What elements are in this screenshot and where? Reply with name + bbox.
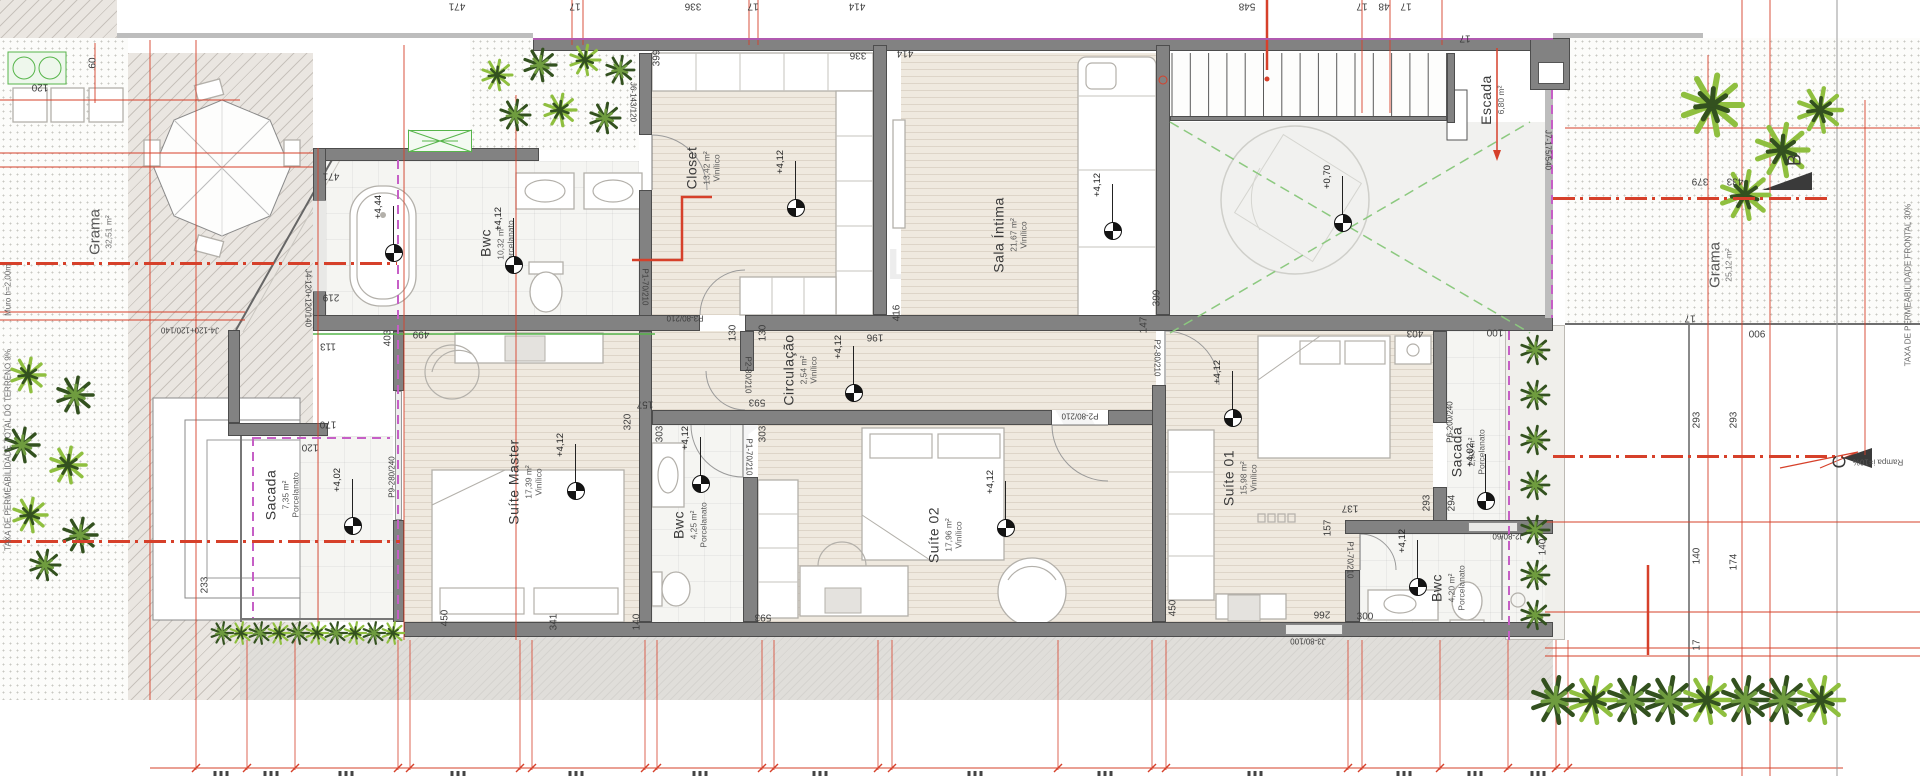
room-material: Vinílico bbox=[809, 334, 820, 405]
note-rampa: Rampa i=10% bbox=[1853, 458, 1903, 467]
dim-label: 593 bbox=[749, 397, 766, 408]
level-target-icon bbox=[505, 256, 523, 274]
room-material: Porcelanato bbox=[699, 502, 710, 547]
dim-label: 414 bbox=[849, 1, 866, 12]
red-dashdot-line bbox=[1553, 455, 1843, 458]
level-value: +4,12 bbox=[1092, 173, 1103, 197]
room-label-suite-01: Suíte 0115,98 m²Vinílico bbox=[1221, 450, 1260, 506]
dim-label: 219 bbox=[323, 292, 340, 303]
level-target-icon bbox=[692, 475, 710, 493]
level-target-icon bbox=[385, 244, 403, 262]
red-dashdot-line bbox=[1553, 197, 1832, 200]
dim-label: 233 bbox=[200, 577, 211, 594]
room-area: 7,35 m² bbox=[280, 470, 291, 520]
magenta-dash-v bbox=[397, 160, 399, 620]
room-area: 13,42 m² bbox=[701, 147, 712, 190]
dim-label: P3-80/210 bbox=[667, 314, 704, 323]
room-area: 6,80 m² bbox=[1495, 75, 1506, 125]
room-material: Vinílico bbox=[1249, 450, 1260, 506]
room-area: 4,25 m² bbox=[688, 502, 699, 547]
room-name: Bwc bbox=[1429, 565, 1447, 610]
dim-label: 499 bbox=[413, 329, 430, 340]
level-target-icon bbox=[1409, 578, 1427, 596]
room-material: Vinílico bbox=[954, 507, 965, 563]
room-name: Closet bbox=[684, 147, 702, 190]
dim-label: 320 bbox=[623, 414, 634, 431]
dim-label: 450 bbox=[1168, 600, 1179, 617]
yard-area: 32,51 m² bbox=[104, 209, 114, 255]
dim-label: 137 bbox=[1342, 503, 1359, 514]
dim-label: 341 bbox=[549, 614, 560, 631]
level-value: +4,12 bbox=[833, 335, 844, 359]
dim-label: 130 bbox=[728, 325, 739, 342]
dim-label: P9-280/240 bbox=[388, 456, 397, 497]
room-label-suite-master: Suíte Master17,39 m²Vinílico bbox=[506, 439, 545, 524]
dim-label: 60 bbox=[88, 57, 99, 68]
dim-label: 399 bbox=[652, 50, 663, 67]
level-value: +4,12 bbox=[1397, 529, 1408, 553]
dim-label: 336 bbox=[850, 50, 867, 61]
dim-label: 266 bbox=[1314, 609, 1331, 620]
section-marker-B: B bbox=[1785, 154, 1806, 166]
room-label-suite-02: Suíte 0217,96 m²Vinílico bbox=[926, 507, 965, 563]
dim-label: 471 bbox=[449, 1, 466, 12]
note-taxa-left: TAXA DE PERMEABILIDADE TOTAL DO TERRENO … bbox=[4, 349, 13, 551]
dim-label: 140 bbox=[1692, 548, 1703, 565]
room-label-bwc-meio: Bwc4,25 m²Porcelanato bbox=[671, 502, 710, 547]
note-muro: Muro h=2,00m bbox=[4, 264, 13, 316]
yard-name: Grama bbox=[87, 209, 104, 255]
room-label-escada: Escada6,80 m² bbox=[1478, 75, 1506, 125]
level-value: +4,44 bbox=[373, 195, 384, 219]
dim-label: 414 bbox=[897, 48, 914, 59]
level-value: +4,12 bbox=[493, 207, 504, 231]
room-name: Sacada bbox=[263, 470, 281, 520]
dim-label: 113 bbox=[320, 341, 336, 352]
dim-label: 293 bbox=[1692, 412, 1703, 429]
room-area: 15,98 m² bbox=[1238, 450, 1249, 506]
dim-label: P1-70/210 bbox=[641, 269, 650, 306]
section-marker-C: C bbox=[1830, 456, 1851, 469]
dim-label: J6-143/120 bbox=[629, 82, 638, 122]
dim-label: 130 bbox=[758, 325, 769, 342]
dim-label: 471 bbox=[323, 171, 340, 182]
red-dashdot-line bbox=[0, 262, 397, 265]
dim-label: 336 bbox=[685, 1, 702, 12]
dim-label: 48 bbox=[1378, 1, 1389, 12]
dim-label: 900 bbox=[1749, 328, 1766, 339]
magenta-dash-v bbox=[1551, 90, 1553, 318]
dim-label: 293 bbox=[1422, 495, 1433, 512]
dim-label: 403 bbox=[383, 330, 394, 347]
dim-label: 303 bbox=[758, 426, 769, 443]
level-target-icon bbox=[344, 517, 362, 535]
room-name: Suíte 01 bbox=[1221, 450, 1239, 506]
dim-label: 17 bbox=[1684, 313, 1695, 324]
dim-label: 548 bbox=[1239, 1, 1256, 12]
room-label-sala-intima: Sala Íntima21,67 m²Vinílico bbox=[991, 197, 1030, 273]
dim-label: J4-120+120/140 bbox=[161, 326, 219, 335]
dim-label: 17 bbox=[1692, 639, 1703, 650]
room-material: Porcelanato bbox=[291, 470, 302, 520]
room-name: Circulação bbox=[781, 334, 799, 405]
level-target-icon bbox=[997, 519, 1015, 537]
yard-label: Grama25,12 m² bbox=[1707, 242, 1734, 288]
room-material: Vinílico bbox=[534, 439, 545, 524]
magenta-top-line bbox=[533, 38, 1553, 40]
level-leader bbox=[1417, 540, 1419, 580]
room-label-circulacao: Circulação2,54 m²Vinílico bbox=[781, 334, 820, 405]
level-leader bbox=[1485, 454, 1487, 494]
magenta-dash-v bbox=[1508, 331, 1510, 640]
room-area: 17,39 m² bbox=[523, 439, 534, 524]
yard-name: Grama bbox=[1707, 242, 1724, 288]
dim-label: 100 bbox=[1487, 327, 1504, 338]
dim-label: 593 bbox=[755, 612, 772, 623]
level-target-icon bbox=[567, 482, 585, 500]
dim-label: P1-70/210 bbox=[1346, 542, 1355, 579]
level-target-icon bbox=[1334, 214, 1352, 232]
level-value: +4,02 bbox=[1465, 443, 1476, 467]
dim-label: J4-120+120/140 bbox=[304, 269, 313, 327]
level-leader bbox=[1005, 481, 1007, 521]
room-label-closet: Closet13,42 m²Vinílico bbox=[684, 147, 723, 190]
level-target-icon bbox=[845, 384, 863, 402]
dim-label: P2-80/210 bbox=[744, 357, 753, 394]
level-value: +0,70 bbox=[1322, 165, 1333, 189]
dim-label: 403 bbox=[1407, 328, 1424, 339]
dim-label: 140 bbox=[632, 614, 643, 631]
room-name: Suíte Master bbox=[506, 439, 524, 524]
level-target-icon bbox=[1477, 492, 1495, 510]
level-leader bbox=[1342, 176, 1344, 216]
level-leader bbox=[575, 444, 577, 484]
red-dashdot-line bbox=[0, 540, 400, 543]
dim-label: 303 bbox=[655, 426, 666, 443]
room-area: 4,20 m² bbox=[1446, 565, 1457, 610]
dim-label: 140 bbox=[1538, 539, 1549, 556]
room-label-sacada-esq: Sacada7,35 m²Porcelanato bbox=[263, 470, 302, 520]
level-value: +4,12 bbox=[775, 150, 786, 174]
room-material: Porcelanato bbox=[1457, 565, 1468, 610]
dim-label: P1-70/210 bbox=[745, 439, 754, 476]
level-leader bbox=[393, 206, 395, 246]
level-leader bbox=[795, 161, 797, 201]
room-material: Vinílico bbox=[1019, 197, 1030, 273]
level-value: +4,02 bbox=[332, 468, 343, 492]
dim-label: J7-175/540 bbox=[1544, 130, 1553, 170]
dim-label: 17 bbox=[1459, 33, 1470, 44]
level-value: +4,12 bbox=[680, 426, 691, 450]
room-name: Sacada bbox=[1449, 427, 1467, 477]
level-leader bbox=[1232, 371, 1234, 411]
dim-label: P2-80/210 bbox=[1062, 412, 1099, 421]
dim-label: P2-80/210 bbox=[1153, 340, 1162, 377]
dim-label: 17 bbox=[569, 1, 580, 12]
dim-label: 120 bbox=[302, 442, 319, 453]
dim-label: 300 bbox=[1357, 612, 1374, 623]
level-value: +4,12 bbox=[555, 433, 566, 457]
magenta-dash-h bbox=[252, 437, 390, 439]
room-material: Vinílico bbox=[712, 147, 723, 190]
note-taxa-right: TAXA DE PERMEABILIDADE FRONTAL 30% bbox=[1904, 204, 1913, 367]
level-leader bbox=[700, 437, 702, 477]
yard-area: 25,12 m² bbox=[1724, 242, 1734, 288]
dim-label: 399 bbox=[1152, 290, 1163, 307]
level-target-icon bbox=[787, 199, 805, 217]
dim-label: 147 bbox=[1139, 317, 1150, 334]
dim-label: 170 bbox=[320, 419, 337, 430]
dim-label: 293 bbox=[1729, 412, 1740, 429]
level-value: +4,12 bbox=[1212, 360, 1223, 384]
room-area: 21,67 m² bbox=[1008, 197, 1019, 273]
dim-label: 174 bbox=[1729, 554, 1740, 571]
lines-layer bbox=[0, 0, 1920, 776]
room-name: Suíte 02 bbox=[926, 507, 944, 563]
level-target-icon bbox=[1224, 409, 1242, 427]
magenta-dash-v bbox=[252, 437, 254, 618]
dim-label: 196 bbox=[867, 332, 884, 343]
room-label-bwc-suite01: Bwc4,20 m²Porcelanato bbox=[1429, 565, 1468, 610]
dim-label: 416 bbox=[892, 305, 903, 322]
room-name: Escada bbox=[1478, 75, 1496, 125]
dim-label: 157 bbox=[1323, 520, 1334, 537]
dim-label: 17 bbox=[1356, 1, 1367, 12]
dim-label: 120 bbox=[32, 82, 49, 93]
dim-label: 294 bbox=[1447, 495, 1458, 512]
dim-label: 433 bbox=[1727, 176, 1744, 187]
level-target-icon bbox=[1104, 222, 1122, 240]
floor-plan-canvas: IMOBILIÁRIA KIN 471173361741454817481717… bbox=[0, 0, 1920, 776]
room-area: 2,54 m² bbox=[798, 334, 809, 405]
dim-label: J2-80/60 bbox=[1492, 532, 1523, 541]
room-area: 17,96 m² bbox=[943, 507, 954, 563]
dim-label: 157 bbox=[637, 399, 654, 410]
dim-label: 17 bbox=[747, 1, 758, 12]
level-leader bbox=[513, 218, 515, 258]
dim-label: 450 bbox=[440, 610, 451, 627]
dim-label: J3-80/100 bbox=[1290, 637, 1326, 646]
dim-label: 17 bbox=[1400, 1, 1411, 12]
level-leader bbox=[1112, 184, 1114, 224]
room-name: Sala Íntima bbox=[991, 197, 1009, 273]
dim-label: 379 bbox=[1692, 176, 1709, 187]
level-leader bbox=[352, 479, 354, 519]
yard-label: Grama32,51 m² bbox=[87, 209, 114, 255]
level-leader bbox=[853, 346, 855, 386]
level-value: +4,12 bbox=[985, 470, 996, 494]
room-name: Bwc bbox=[671, 502, 689, 547]
